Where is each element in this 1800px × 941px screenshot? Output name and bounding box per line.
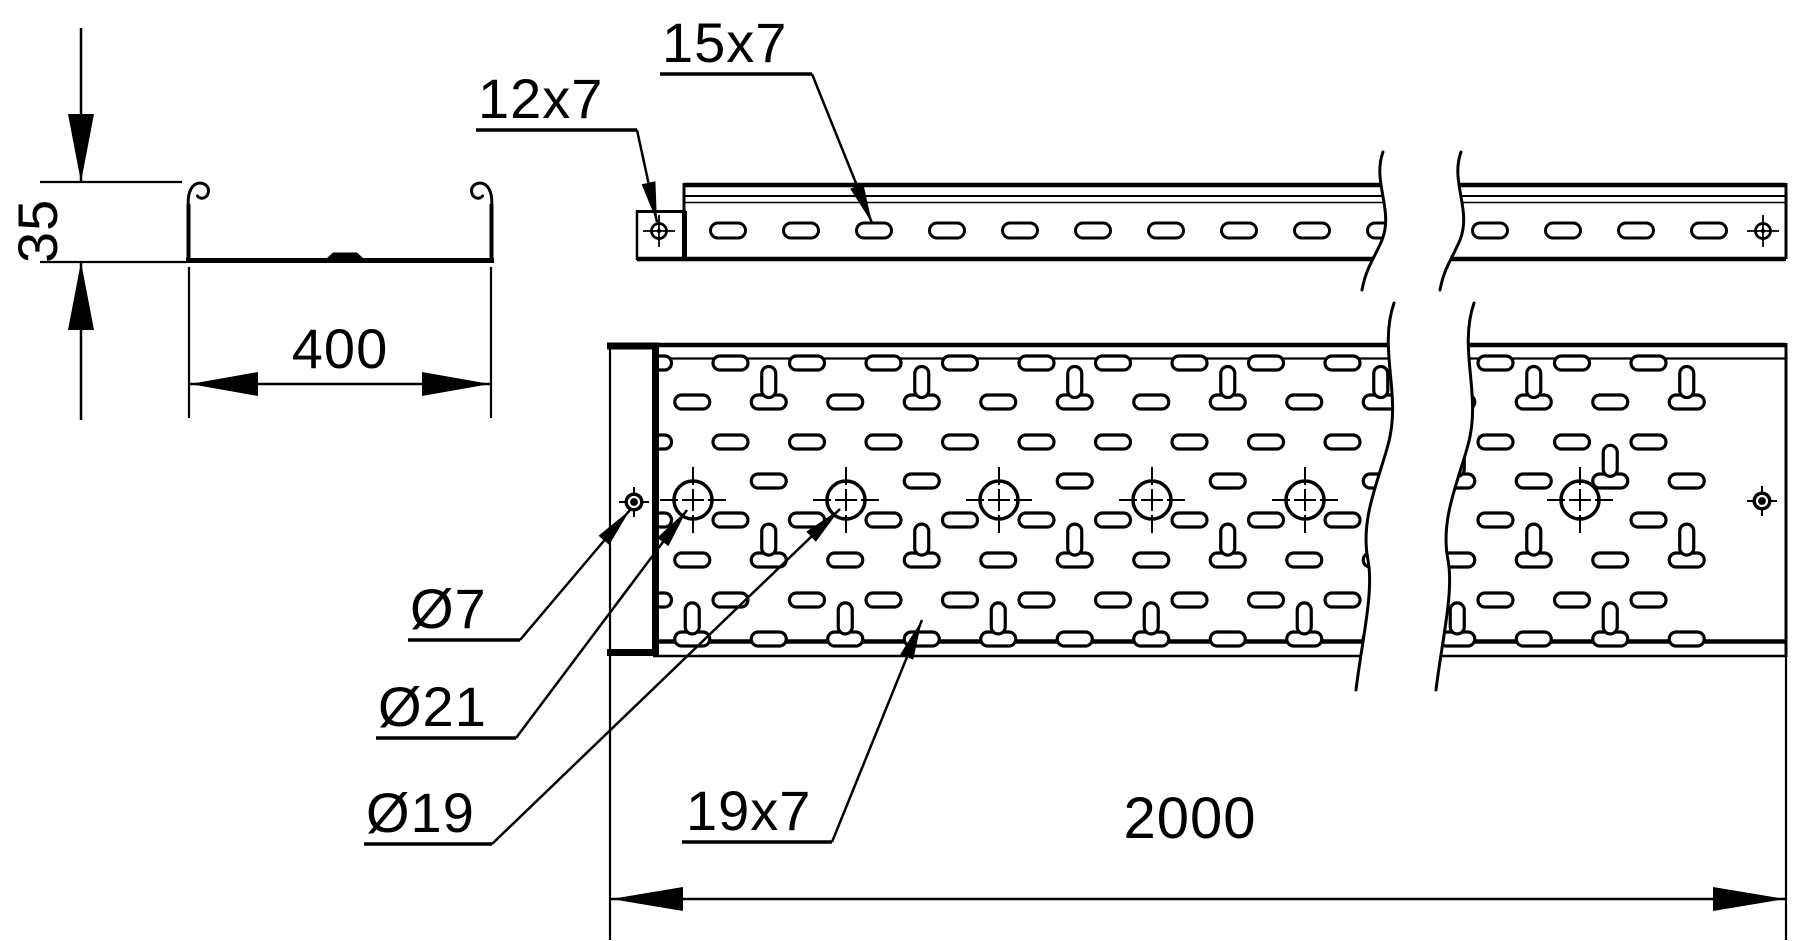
drawing-labels: 35 400 12x7 15x7 Ø7 Ø21 Ø19 19x7 2000	[6, 11, 1257, 851]
label-19x7: 19x7	[686, 779, 811, 842]
side-slot	[1149, 223, 1184, 238]
plan-slot-horizontal	[1249, 435, 1284, 449]
plan-slot-vertical	[762, 367, 776, 398]
plan-slot-horizontal	[981, 553, 1016, 567]
plan-slot-horizontal	[1057, 474, 1092, 488]
plan-slot-horizontal	[1593, 395, 1628, 409]
cross-section-view	[40, 28, 494, 420]
plan-slot-horizontal	[1210, 632, 1245, 646]
label-12x7: 12x7	[478, 67, 603, 130]
grommet-disc	[625, 493, 644, 512]
plan-slot-horizontal	[1631, 435, 1666, 449]
break-mask-side	[1362, 152, 1464, 290]
section-center-bump	[327, 253, 363, 259]
plan-slot-vertical	[1221, 524, 1235, 555]
plan-slot-vertical	[915, 367, 929, 398]
side-slot	[1076, 223, 1111, 238]
plan-view-tab	[607, 343, 659, 940]
plan-slot-horizontal	[1478, 513, 1513, 527]
plan-slot-horizontal	[866, 435, 901, 449]
plan-slot-horizontal	[1516, 474, 1551, 488]
plan-slot-horizontal	[866, 356, 901, 370]
label-d21: Ø21	[378, 675, 487, 738]
side-slot	[784, 223, 819, 238]
plan-slot-horizontal	[751, 632, 786, 646]
plan-slot-horizontal	[1555, 593, 1590, 607]
section-right-curl	[472, 183, 492, 208]
side-slot	[1692, 223, 1727, 238]
plan-slot-horizontal	[1096, 435, 1131, 449]
plan-slot-vertical	[1068, 367, 1082, 398]
plan-slot-horizontal	[1593, 553, 1628, 567]
plan-slot-horizontal	[1057, 632, 1092, 646]
dim-arrow-400-left	[190, 372, 258, 396]
plan-slot-horizontal	[1516, 632, 1551, 646]
side-slot	[711, 223, 746, 238]
plan-slot-vertical	[1297, 603, 1311, 634]
plan-slot-horizontal	[866, 513, 901, 527]
plan-slot-horizontal	[1019, 513, 1054, 527]
side-view-break	[1362, 152, 1464, 290]
plan-slot-horizontal	[866, 593, 901, 607]
label-d19: Ø19	[366, 781, 475, 844]
plan-slot-vertical	[1603, 445, 1617, 476]
plan-slot-horizontal	[1249, 513, 1284, 527]
label-d7: Ø7	[410, 577, 487, 640]
plan-slot-horizontal	[1134, 395, 1169, 409]
plan-slot-vertical	[915, 524, 929, 555]
plan-slot-horizontal	[1096, 513, 1131, 527]
plan-slot-horizontal	[828, 553, 863, 567]
plan-slot-horizontal	[1134, 553, 1169, 567]
plan-slot-horizontal	[1669, 632, 1704, 646]
plan-slot-horizontal	[790, 593, 825, 607]
plan-slot-horizontal	[1172, 513, 1207, 527]
plan-slot-horizontal	[675, 395, 710, 409]
plan-slot-horizontal	[828, 395, 863, 409]
side-view-perforation	[643, 215, 1779, 247]
plan-slot-vertical	[685, 603, 699, 634]
plan-slot-horizontal	[943, 435, 978, 449]
plan-slot-horizontal	[1172, 435, 1207, 449]
plan-slot-horizontal	[1019, 435, 1054, 449]
label-15x7: 15x7	[662, 11, 787, 74]
plan-slot-horizontal	[713, 593, 748, 607]
plan-slot-horizontal	[1555, 435, 1590, 449]
plan-slot-vertical	[762, 524, 776, 555]
plan-slot-horizontal	[713, 356, 748, 370]
leader-arrow-d7	[599, 510, 630, 545]
plan-slot-horizontal	[713, 513, 748, 527]
plan-slot-horizontal	[1210, 474, 1245, 488]
dim-400-value: 400	[292, 317, 388, 380]
plan-slot-vertical	[1527, 367, 1541, 398]
leader-arrow-12x7	[642, 181, 657, 222]
plan-slot-horizontal	[1287, 553, 1322, 567]
plan-slot-horizontal	[1325, 513, 1360, 527]
side-slot	[857, 223, 892, 238]
technical-drawing-canvas: 35 400 12x7 15x7 Ø7 Ø21 Ø19 19x7 2000	[0, 0, 1800, 941]
plan-slot-vertical	[1450, 603, 1464, 634]
plan-slot-vertical	[1680, 524, 1694, 555]
side-slot	[1546, 223, 1581, 238]
dim-arrow-35-down	[68, 114, 94, 182]
cable-tray-drawing: 35 400 12x7 15x7 Ø7 Ø21 Ø19 19x7 2000	[0, 0, 1800, 941]
dim-2000-value: 2000	[1123, 786, 1256, 851]
end-hole-center-dot	[1761, 229, 1765, 233]
plan-slot-horizontal	[1172, 593, 1207, 607]
plan-slot-vertical	[1374, 367, 1388, 398]
dim-arrow-2000-right	[1713, 887, 1785, 911]
plan-slot-horizontal	[1669, 474, 1704, 488]
end-hole-center-dot	[657, 229, 661, 233]
plan-slot-vertical	[1221, 367, 1235, 398]
plan-slot-horizontal	[1096, 593, 1131, 607]
plan-slot-horizontal	[790, 356, 825, 370]
side-slot	[1473, 223, 1508, 238]
plan-slot-vertical	[1680, 367, 1694, 398]
plan-slot-horizontal	[1631, 513, 1666, 527]
dim-arrow-35-up	[68, 262, 94, 330]
plan-slot-horizontal	[713, 435, 748, 449]
plan-slot-horizontal	[751, 474, 786, 488]
plan-slot-horizontal	[1287, 395, 1322, 409]
plan-slot-vertical	[991, 603, 1005, 634]
plan-slot-vertical	[1068, 524, 1082, 555]
plan-slot-horizontal	[943, 593, 978, 607]
dim-arrow-2000-left	[611, 887, 683, 911]
plan-slot-horizontal	[1249, 356, 1284, 370]
side-slot	[1295, 223, 1330, 238]
plan-slot-horizontal	[675, 553, 710, 567]
plan-slot-vertical	[1144, 603, 1158, 634]
plan-slot-horizontal	[904, 474, 939, 488]
section-left-curl	[188, 183, 208, 208]
plan-slot-horizontal	[943, 356, 978, 370]
side-slot	[930, 223, 965, 238]
side-slot	[1222, 223, 1257, 238]
plan-slot-horizontal	[1631, 356, 1666, 370]
plan-slot-horizontal	[981, 395, 1016, 409]
plan-slot-horizontal	[1019, 356, 1054, 370]
plan-slot-horizontal	[1325, 356, 1360, 370]
grommet-disc	[1753, 492, 1772, 511]
plan-slot-horizontal	[1325, 593, 1360, 607]
plan-slot-horizontal	[1478, 593, 1513, 607]
dim-arrow-400-right	[422, 372, 490, 396]
plan-slot-horizontal	[1631, 593, 1666, 607]
side-slot	[1003, 223, 1038, 238]
plan-slot-horizontal	[1019, 593, 1054, 607]
plan-slot-horizontal	[943, 513, 978, 527]
plan-slot-vertical	[1527, 524, 1541, 555]
plan-slot-horizontal	[1478, 435, 1513, 449]
plan-slot-horizontal	[1096, 356, 1131, 370]
plan-slot-horizontal	[1555, 356, 1590, 370]
plan-slot-horizontal	[790, 435, 825, 449]
plan-slot-vertical	[838, 603, 852, 634]
plan-slot-horizontal	[1325, 435, 1360, 449]
plan-slot-vertical	[1603, 603, 1617, 634]
side-slot	[1619, 223, 1654, 238]
plan-slot-horizontal	[1172, 356, 1207, 370]
dim-35-value: 35	[6, 199, 69, 263]
plan-slot-horizontal	[1478, 356, 1513, 370]
plan-slot-horizontal	[1249, 593, 1284, 607]
